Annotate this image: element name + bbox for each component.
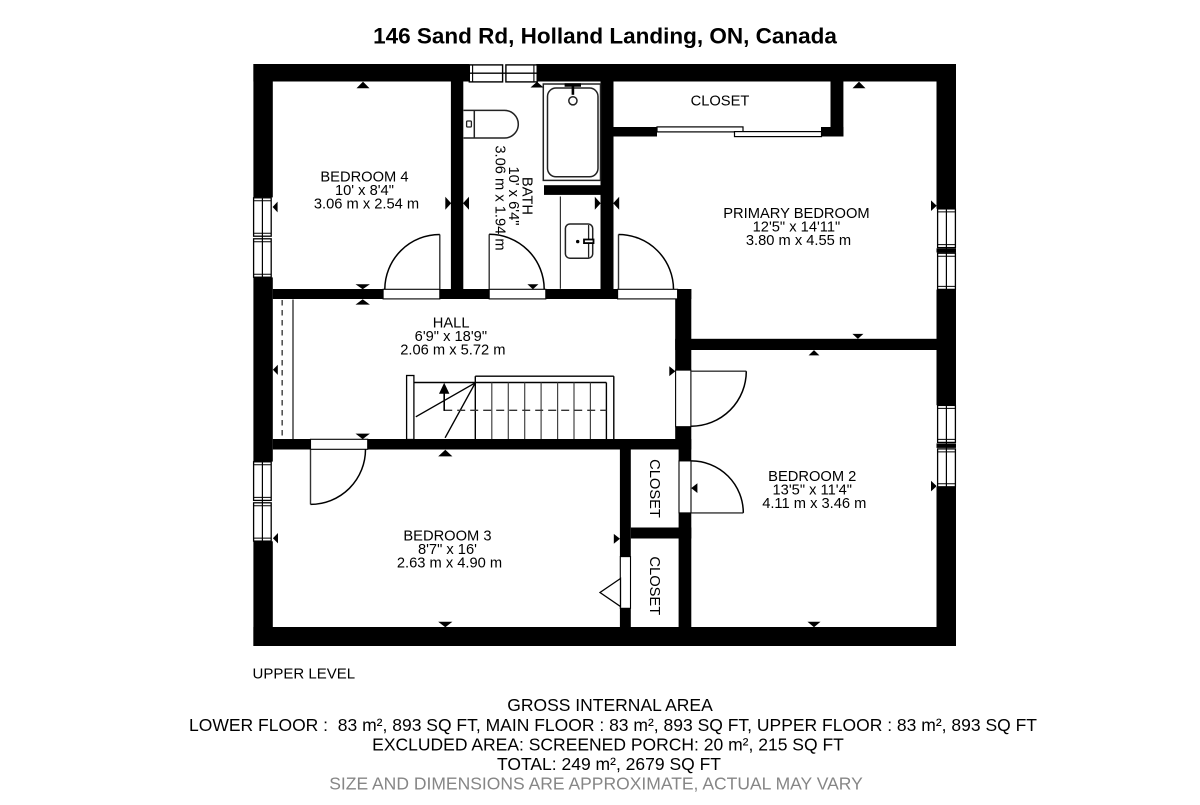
svg-text:GROSS INTERNAL AREA: GROSS INTERNAL AREA: [507, 695, 713, 715]
svg-text:146 Sand Rd, Holland Landing,: 146 Sand Rd, Holland Landing, ON, Canada: [373, 24, 837, 49]
svg-text:BEDROOM 2 13'5" x 11'4" 4.11 m: BEDROOM 2 13'5" x 11'4" 4.11 m x 3.46 m: [762, 469, 866, 512]
svg-text:EXCLUDED AREA: SCREENED PORCH:: EXCLUDED AREA: SCREENED PORCH: 20 m², 21…: [372, 734, 844, 754]
svg-text:SIZE AND DIMENSIONS ARE APPROX: SIZE AND DIMENSIONS ARE APPROXIMATE, ACT…: [329, 774, 863, 794]
svg-text:CLOSET: CLOSET: [646, 556, 662, 615]
svg-text:CLOSET: CLOSET: [646, 459, 662, 518]
svg-text:CLOSET: CLOSET: [691, 93, 750, 109]
svg-text:UPPER LEVEL: UPPER LEVEL: [253, 666, 356, 683]
svg-text:LOWER FLOOR : 83 m², 893 SQ F: LOWER FLOOR : 83 m², 893 SQ FT, MAIN FLO…: [189, 715, 1037, 735]
svg-text:TOTAL: 249 m², 2679 SQ FT: TOTAL: 249 m², 2679 SQ FT: [497, 754, 721, 774]
